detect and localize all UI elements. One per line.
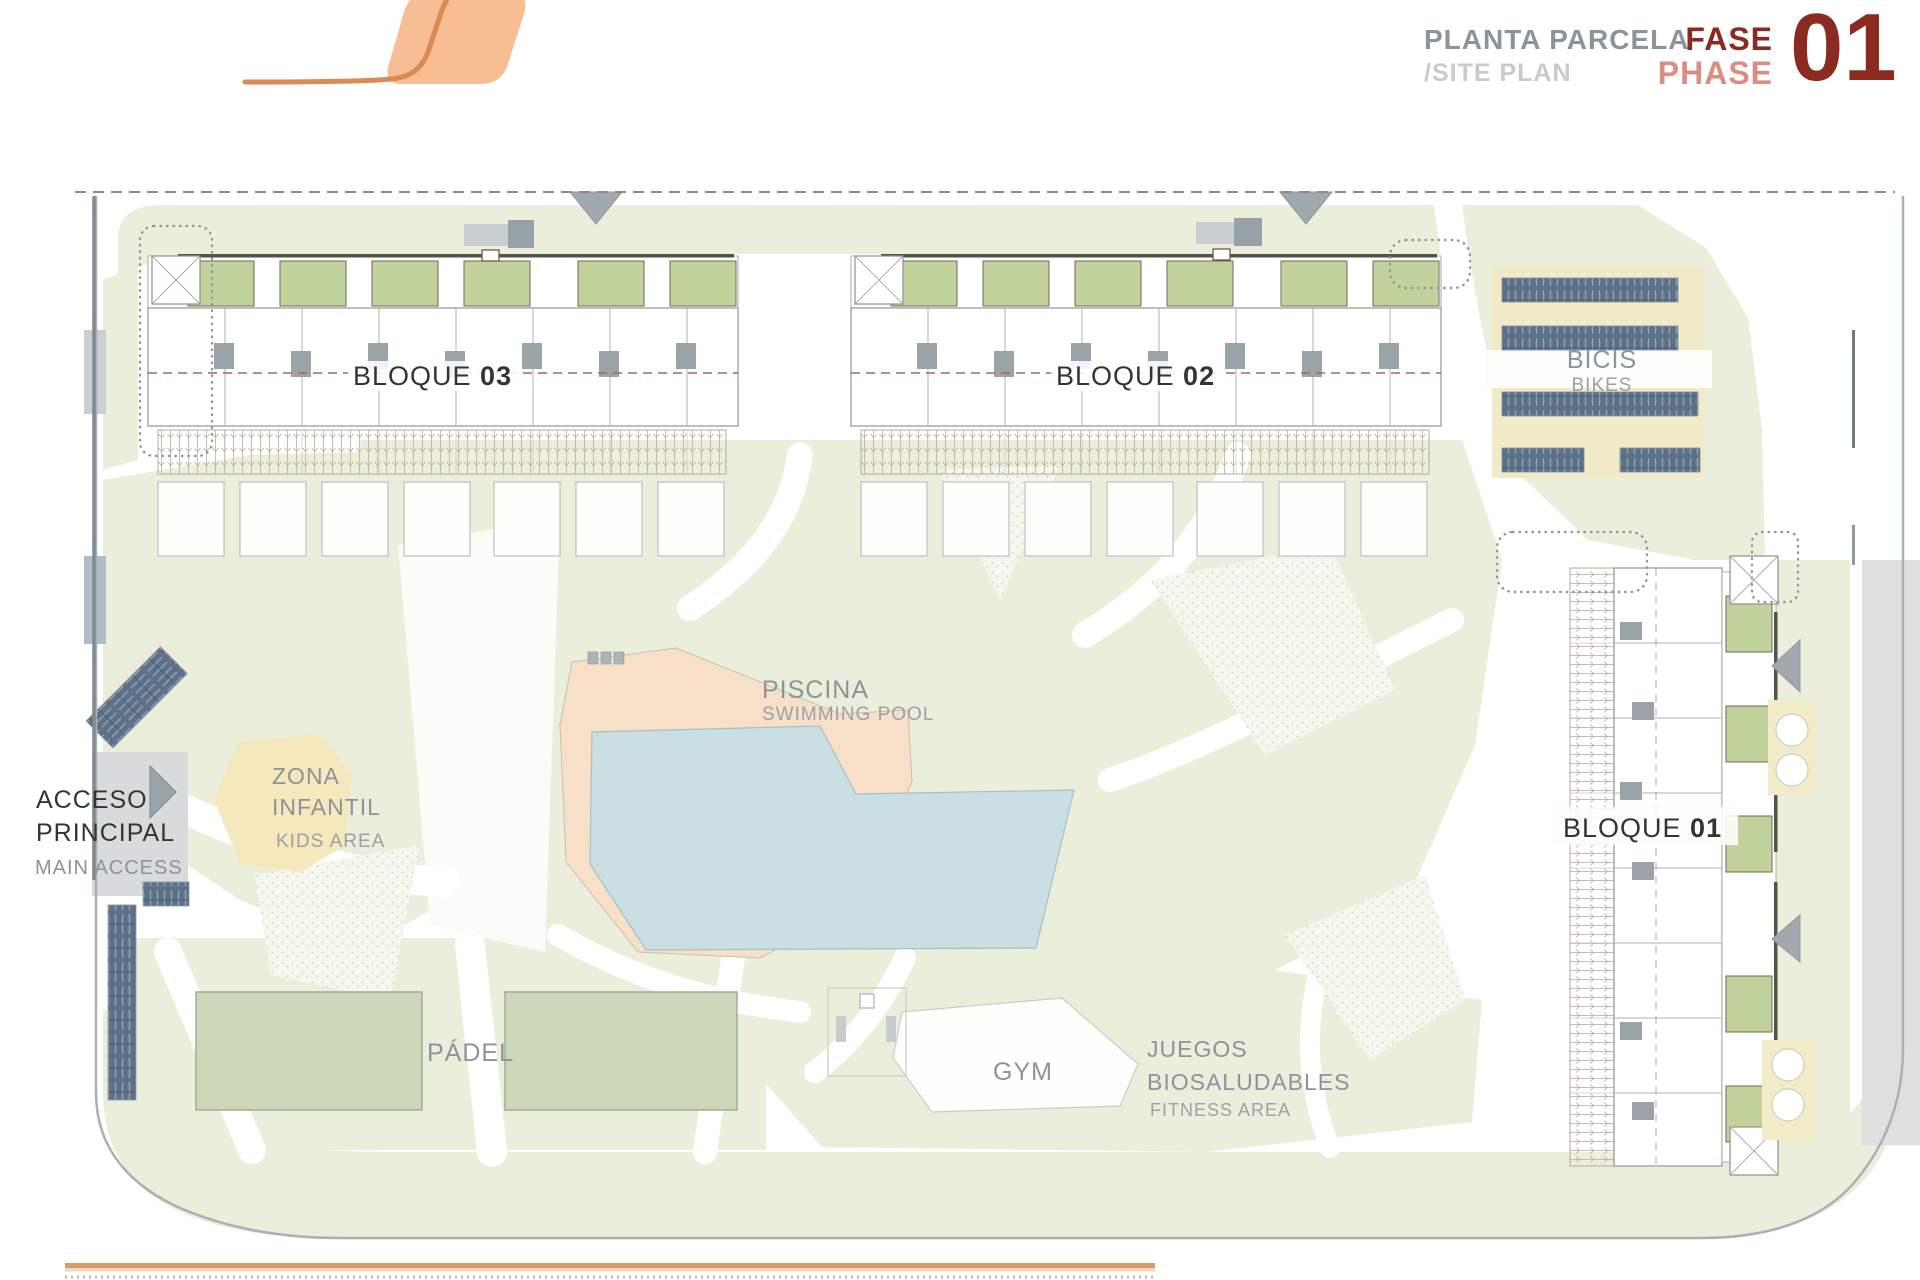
- label-bloque03: BLOQUE 03: [348, 361, 517, 392]
- label-kids-en: KIDS AREA: [276, 831, 385, 853]
- site-plan-page: PLANTA PARCELA /SITE PLAN FASE PHASE 01 …: [0, 0, 1920, 1280]
- site-plan-drawing: [0, 0, 1920, 1280]
- label-kids-es2: INFANTIL: [272, 794, 381, 821]
- phase-label-es: FASE: [1600, 21, 1773, 58]
- label-kids-es1: ZONA: [272, 763, 340, 790]
- label-bloque01: BLOQUE 01: [1563, 813, 1722, 844]
- label-access-es1: ACCESO: [36, 786, 148, 815]
- label-gym: GYM: [993, 1058, 1053, 1087]
- label-access-es2: PRINCIPAL: [36, 819, 175, 848]
- label-bloque02: BLOQUE 02: [1051, 361, 1220, 392]
- building-bloque01: [1553, 556, 1778, 1175]
- label-bikes-en: BIKES: [1540, 375, 1664, 397]
- plan-title-en: /SITE PLAN: [1424, 59, 1572, 88]
- label-access-en: MAIN ACCESS: [35, 857, 183, 880]
- label-fitness-es1: JUEGOS: [1147, 1036, 1248, 1063]
- label-pool-en: SWIMMING POOL: [762, 704, 934, 726]
- label-fitness-es2: BIOSALUDABLES: [1147, 1069, 1350, 1096]
- label-pool-es: PISCINA: [762, 676, 869, 705]
- phase-label-en: PHASE: [1600, 55, 1773, 92]
- phase-number: 01: [1790, 0, 1897, 96]
- brand-logo: [245, 0, 525, 84]
- label-fitness-en: FITNESS AREA: [1150, 1100, 1291, 1121]
- label-padel: PÁDEL: [427, 1039, 514, 1068]
- bottom-accent-rule: [65, 1263, 1155, 1277]
- label-bikes-es: BICIS: [1540, 346, 1664, 375]
